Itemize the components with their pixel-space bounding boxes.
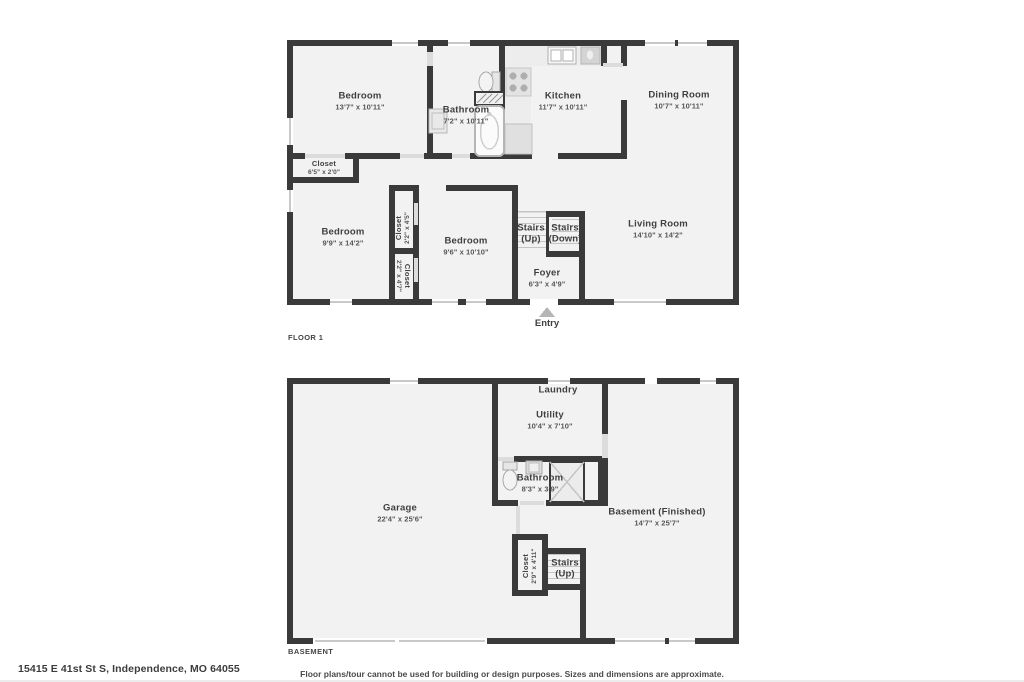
room-dims: 10'7" x 10'11"	[648, 102, 709, 111]
room-dims: 22'4" x 25'6"	[377, 515, 422, 524]
room-name: Bedroom	[335, 90, 384, 101]
room-label-stairs-up: Stairs (Up)	[517, 223, 545, 246]
room-label-bathroom-2: Bathroom 8'3" x 3'9"	[517, 472, 563, 493]
room-dims: 7'2" x 10'11"	[443, 117, 489, 126]
room-label-stairs-up-basement: Stairs (Up)	[551, 558, 579, 581]
room-name: Closet	[521, 548, 530, 583]
room-label-closet-1: Closet 6'5" x 2'0"	[308, 159, 340, 177]
room-name: Utility	[527, 409, 572, 420]
room-name: Closet	[394, 212, 403, 244]
room-name: Bathroom	[517, 472, 563, 483]
room-name: Stairs	[517, 223, 545, 234]
room-name: Closet	[308, 159, 340, 168]
room-name: Dining Room	[648, 89, 709, 100]
room-name: Laundry	[539, 384, 578, 395]
room-name: Garage	[377, 502, 422, 513]
room-label-living-room: Living Room 14'10" x 14'2"	[628, 218, 688, 239]
floor1-title: FLOOR 1	[288, 333, 323, 342]
room-dims: 9'6" x 10'10"	[443, 248, 488, 257]
room-label-kitchen: Kitchen 11'7" x 10'11"	[539, 90, 588, 111]
room-dims: 10'4" x 7'10"	[527, 422, 572, 431]
room-name: Basement (Finished)	[608, 506, 705, 517]
room-dims: (Down)	[549, 234, 582, 245]
room-label-stairs-down: Stairs (Down)	[549, 223, 582, 246]
room-dims: 2'2" x 4'5"	[404, 212, 412, 244]
room-name: Bedroom	[443, 235, 488, 246]
basement-title: BASEMENT	[288, 647, 333, 656]
room-dims: (Up)	[517, 234, 545, 245]
room-name: Stairs	[551, 558, 579, 569]
room-label-foyer: Foyer 6'3" x 4'9"	[529, 267, 566, 288]
room-label-garage: Garage 22'4" x 25'6"	[377, 502, 422, 523]
room-dims: 6'3" x 4'9"	[529, 280, 566, 289]
room-dims: 14'10" x 14'2"	[628, 231, 688, 240]
floorplan-drawing	[0, 0, 1024, 682]
room-name: Foyer	[529, 267, 566, 278]
room-dims: 8'3" x 3'9"	[517, 485, 563, 494]
room-label-bedroom-1: Bedroom 13'7" x 10'11"	[335, 90, 384, 111]
entry-label: Entry	[535, 318, 559, 329]
floor1-plan	[287, 40, 739, 317]
room-dims: 11'7" x 10'11"	[539, 103, 588, 112]
floorplan-page: Bedroom 13'7" x 10'11" Bathroom 7'2" x 1…	[0, 0, 1024, 682]
room-label-laundry: Laundry	[539, 384, 578, 395]
room-label-bathroom-1: Bathroom 7'2" x 10'11"	[443, 104, 489, 125]
room-label-closet-3: Closet 2'2" x 4'7"	[394, 260, 412, 292]
room-name: Bathroom	[443, 104, 489, 115]
room-dims: 6'5" x 2'0"	[308, 169, 340, 177]
room-dims: (Up)	[551, 569, 579, 580]
room-name: Living Room	[628, 218, 688, 229]
room-label-bedroom-3: Bedroom 9'6" x 10'10"	[443, 235, 488, 256]
property-address: 15415 E 41st St S, Independence, MO 6405…	[18, 663, 240, 675]
room-dims: 2'9" x 4'11"	[531, 548, 539, 583]
room-dims: 2'2" x 4'7"	[394, 260, 402, 292]
room-dims: 14'7" x 25'7"	[608, 519, 705, 528]
room-label-closet-4: Closet 2'9" x 4'11"	[521, 548, 539, 583]
room-label-bedroom-2: Bedroom 9'9" x 14'2"	[321, 226, 364, 247]
room-dims: 13'7" x 10'11"	[335, 103, 384, 112]
room-name: Bedroom	[321, 226, 364, 237]
entry-arrow-icon	[539, 307, 555, 317]
room-name: Stairs	[549, 223, 582, 234]
room-name: Kitchen	[539, 90, 588, 101]
room-label-utility: Utility 10'4" x 7'10"	[527, 409, 572, 430]
room-dims: 9'9" x 14'2"	[321, 239, 364, 248]
room-label-closet-2: Closet 2'2" x 4'5"	[394, 212, 412, 244]
room-label-dining-room: Dining Room 10'7" x 10'11"	[648, 89, 709, 110]
room-name: Closet	[403, 260, 412, 292]
disclaimer-text: Floor plans/tour cannot be used for buil…	[300, 669, 724, 679]
room-label-basement-finished: Basement (Finished) 14'7" x 25'7"	[608, 506, 705, 527]
